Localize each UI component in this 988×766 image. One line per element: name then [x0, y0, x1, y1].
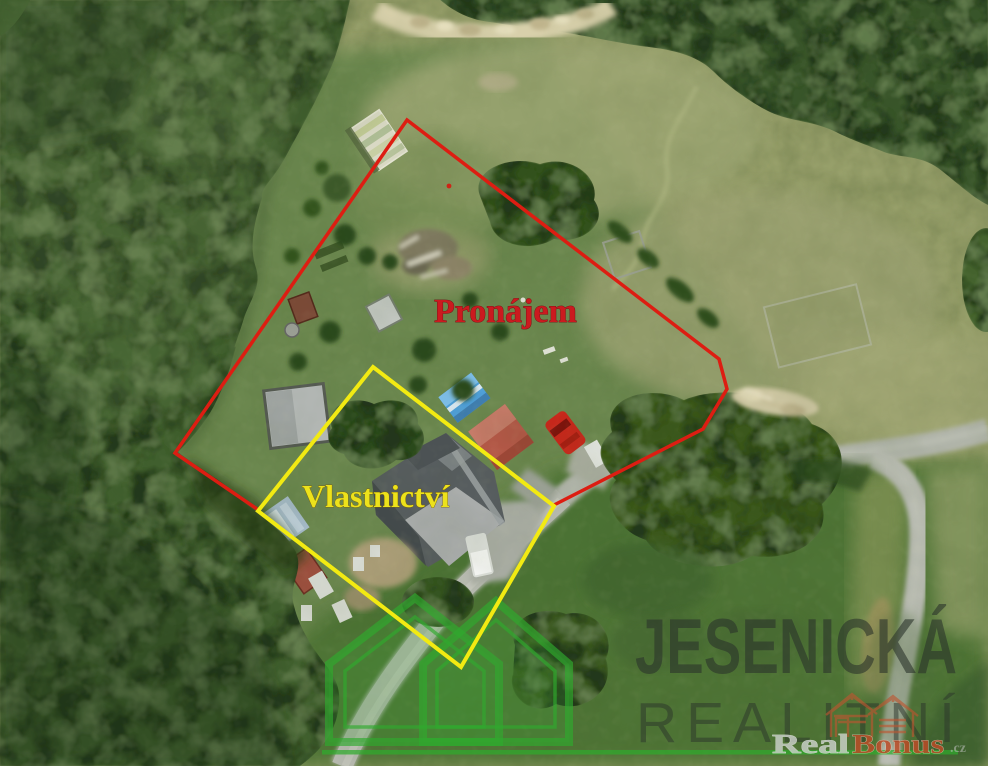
svg-text:Bonus: Bonus	[852, 729, 944, 759]
svg-text:Pronájem: Pronájem	[434, 293, 577, 330]
svg-text:Real: Real	[772, 729, 850, 759]
svg-text:JESENICKÁ: JESENICKÁ	[635, 602, 957, 690]
svg-text:.cz: .cz	[950, 741, 966, 756]
svg-text:Vlastnictví: Vlastnictví	[302, 478, 451, 514]
